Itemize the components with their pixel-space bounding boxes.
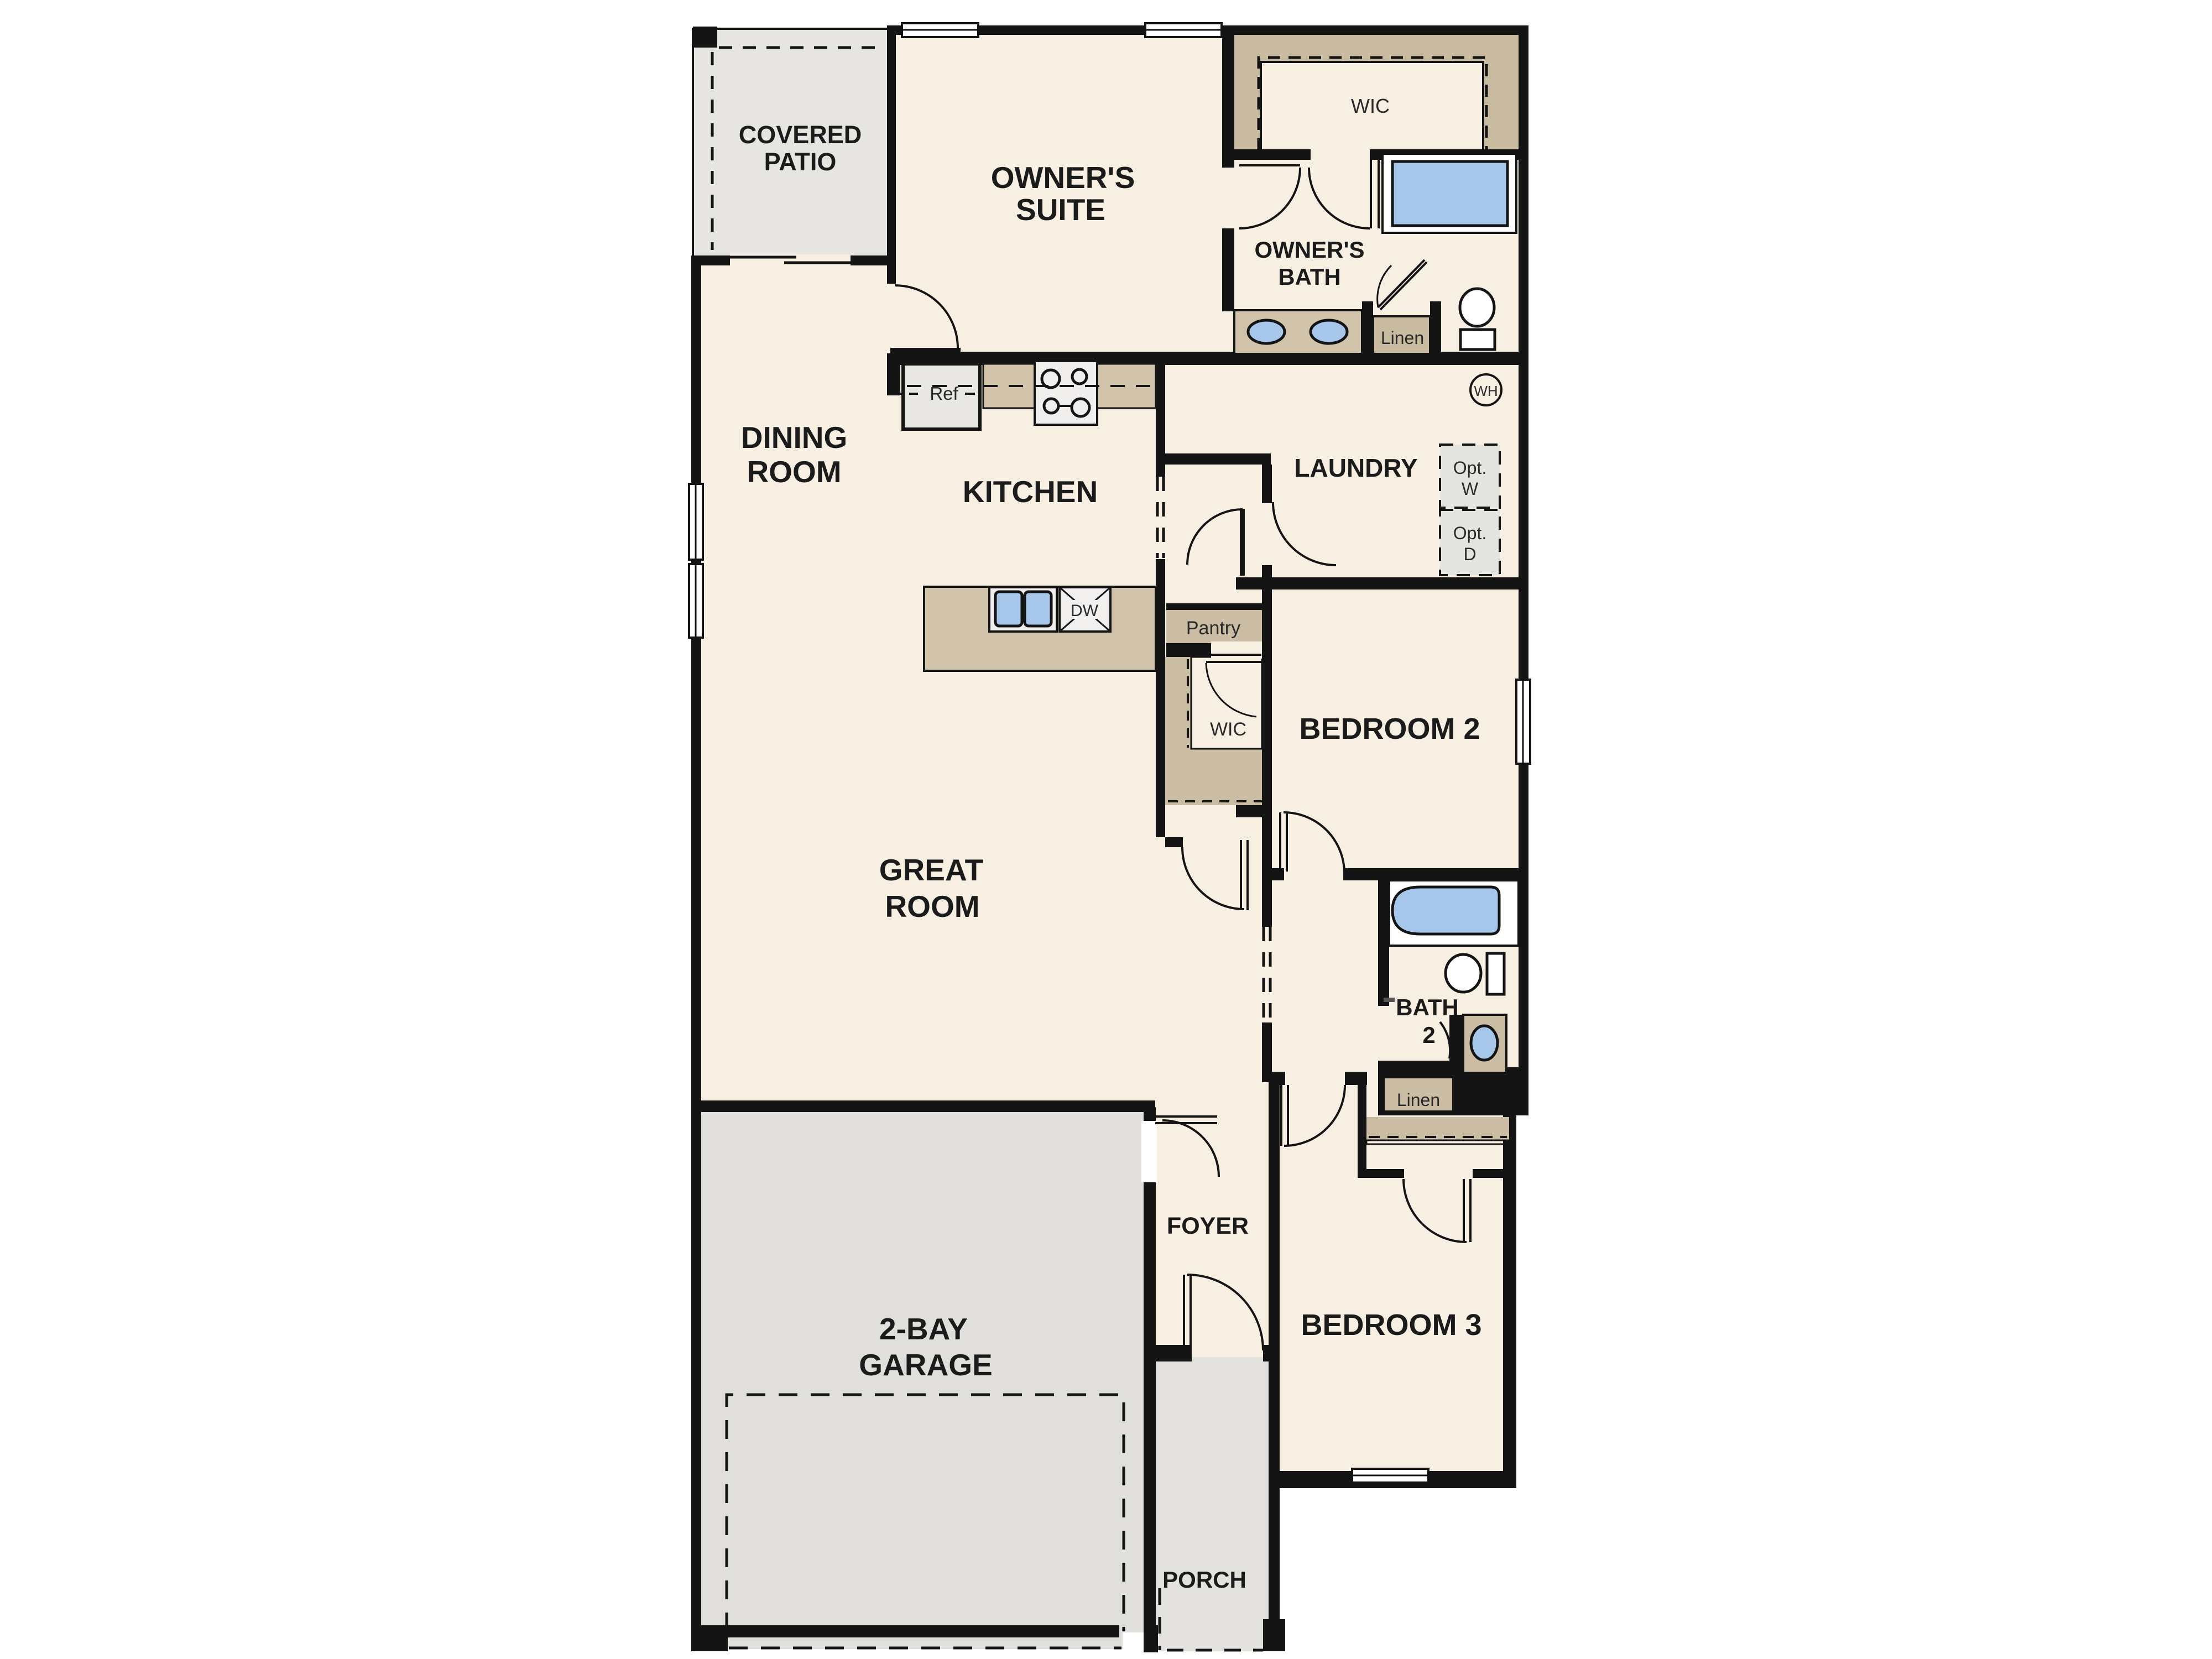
svg-text:BEDROOM 3: BEDROOM 3	[1301, 1308, 1481, 1342]
svg-text:2: 2	[1422, 1022, 1435, 1048]
svg-text:Linen: Linen	[1397, 1090, 1440, 1110]
svg-text:SUITE: SUITE	[1016, 192, 1105, 227]
svg-text:ROOM: ROOM	[885, 889, 979, 924]
svg-text:DINING: DINING	[741, 420, 848, 455]
svg-text:WIC: WIC	[1210, 719, 1246, 740]
svg-text:BATH: BATH	[1396, 994, 1459, 1020]
svg-text:W: W	[1462, 479, 1479, 499]
svg-text:Opt.: Opt.	[1453, 458, 1486, 478]
svg-text:WH: WH	[1474, 383, 1498, 399]
svg-text:Linen: Linen	[1381, 328, 1424, 348]
svg-text:Ref: Ref	[930, 383, 958, 404]
svg-text:LAUNDRY: LAUNDRY	[1294, 453, 1417, 482]
svg-text:PORCH: PORCH	[1162, 1567, 1246, 1593]
svg-text:D: D	[1463, 544, 1476, 564]
svg-text:Pantry: Pantry	[1186, 618, 1240, 639]
svg-text:2-BAY: 2-BAY	[879, 1312, 968, 1346]
svg-text:FOYER: FOYER	[1167, 1213, 1249, 1239]
svg-text:BEDROOM 2: BEDROOM 2	[1299, 712, 1480, 745]
svg-text:WIC: WIC	[1351, 95, 1390, 117]
svg-text:COVERED: COVERED	[739, 121, 862, 149]
svg-text:PATIO: PATIO	[764, 148, 837, 176]
svg-text:DW: DW	[1071, 602, 1099, 620]
svg-text:ROOM: ROOM	[747, 455, 841, 489]
svg-text:GARAGE: GARAGE	[859, 1348, 992, 1382]
svg-text:OWNER'S: OWNER'S	[1255, 237, 1365, 263]
svg-text:GREAT: GREAT	[879, 853, 983, 887]
svg-text:KITCHEN: KITCHEN	[963, 474, 1098, 509]
svg-text:OWNER'S: OWNER'S	[991, 160, 1135, 195]
svg-text:BATH: BATH	[1278, 264, 1341, 290]
svg-text:Opt.: Opt.	[1453, 523, 1486, 543]
